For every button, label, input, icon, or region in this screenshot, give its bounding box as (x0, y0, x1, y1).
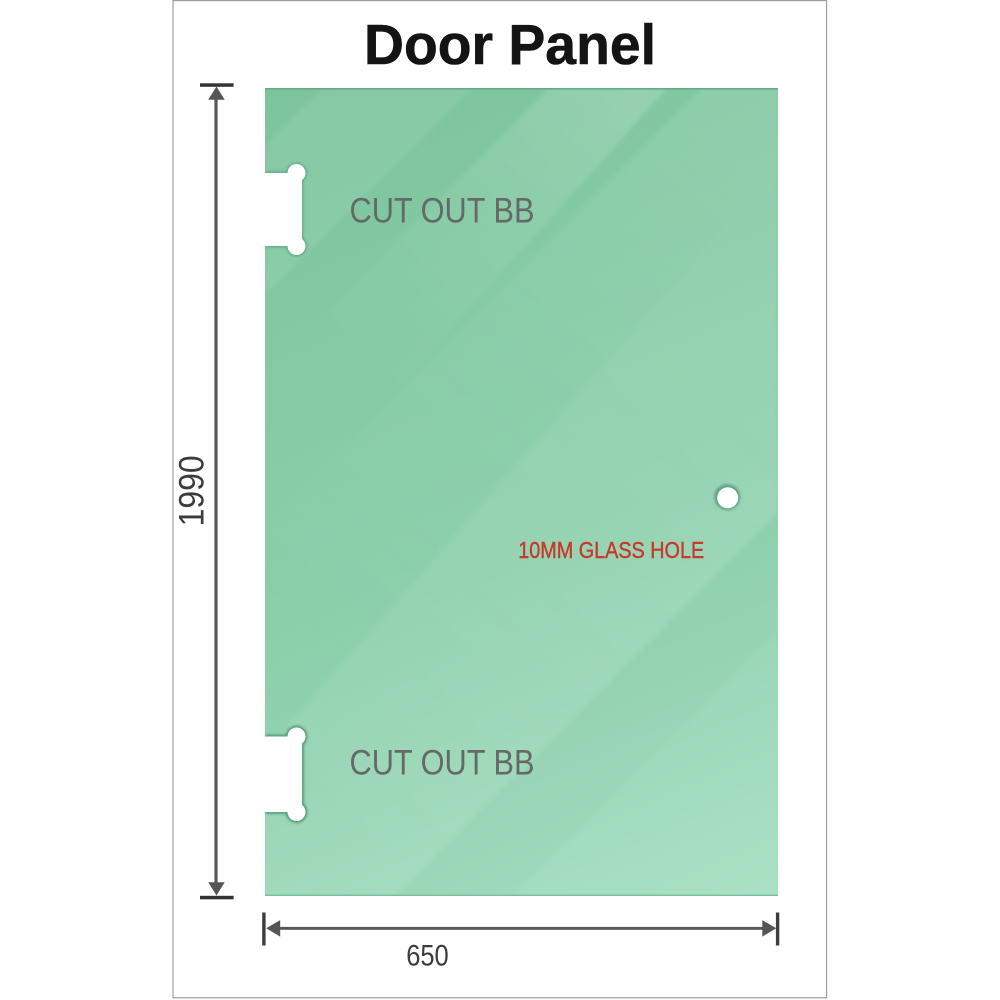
svg-text:CUT OUT BB: CUT OUT BB (350, 743, 535, 782)
svg-text:1990: 1990 (172, 455, 211, 526)
svg-text:CUT OUT BB: CUT OUT BB (350, 191, 535, 230)
svg-text:Door Panel: Door Panel (364, 13, 656, 77)
svg-text:10MM GLASS HOLE: 10MM GLASS HOLE (518, 537, 704, 563)
svg-text:650: 650 (406, 940, 449, 973)
